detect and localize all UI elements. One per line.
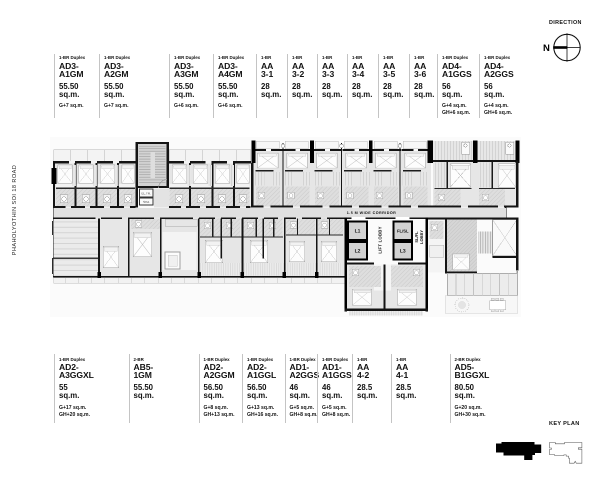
svg-text:EL.TR.: EL.TR. [142,191,152,195]
svg-text:FL/SL: FL/SL [397,229,409,234]
svg-text:LOBBY: LOBBY [419,230,424,244]
svg-text:N: N [543,43,550,54]
svg-text:L2: L2 [355,249,361,255]
svg-text:LIFT LOBBY: LIFT LOBBY [378,226,383,253]
svg-text:1.5 M WIDE CORRIDOR: 1.5 M WIDE CORRIDOR [347,211,397,215]
svg-text:L3: L3 [400,249,406,255]
svg-text:SHA: SHA [143,200,149,204]
svg-text:L1: L1 [355,229,361,235]
